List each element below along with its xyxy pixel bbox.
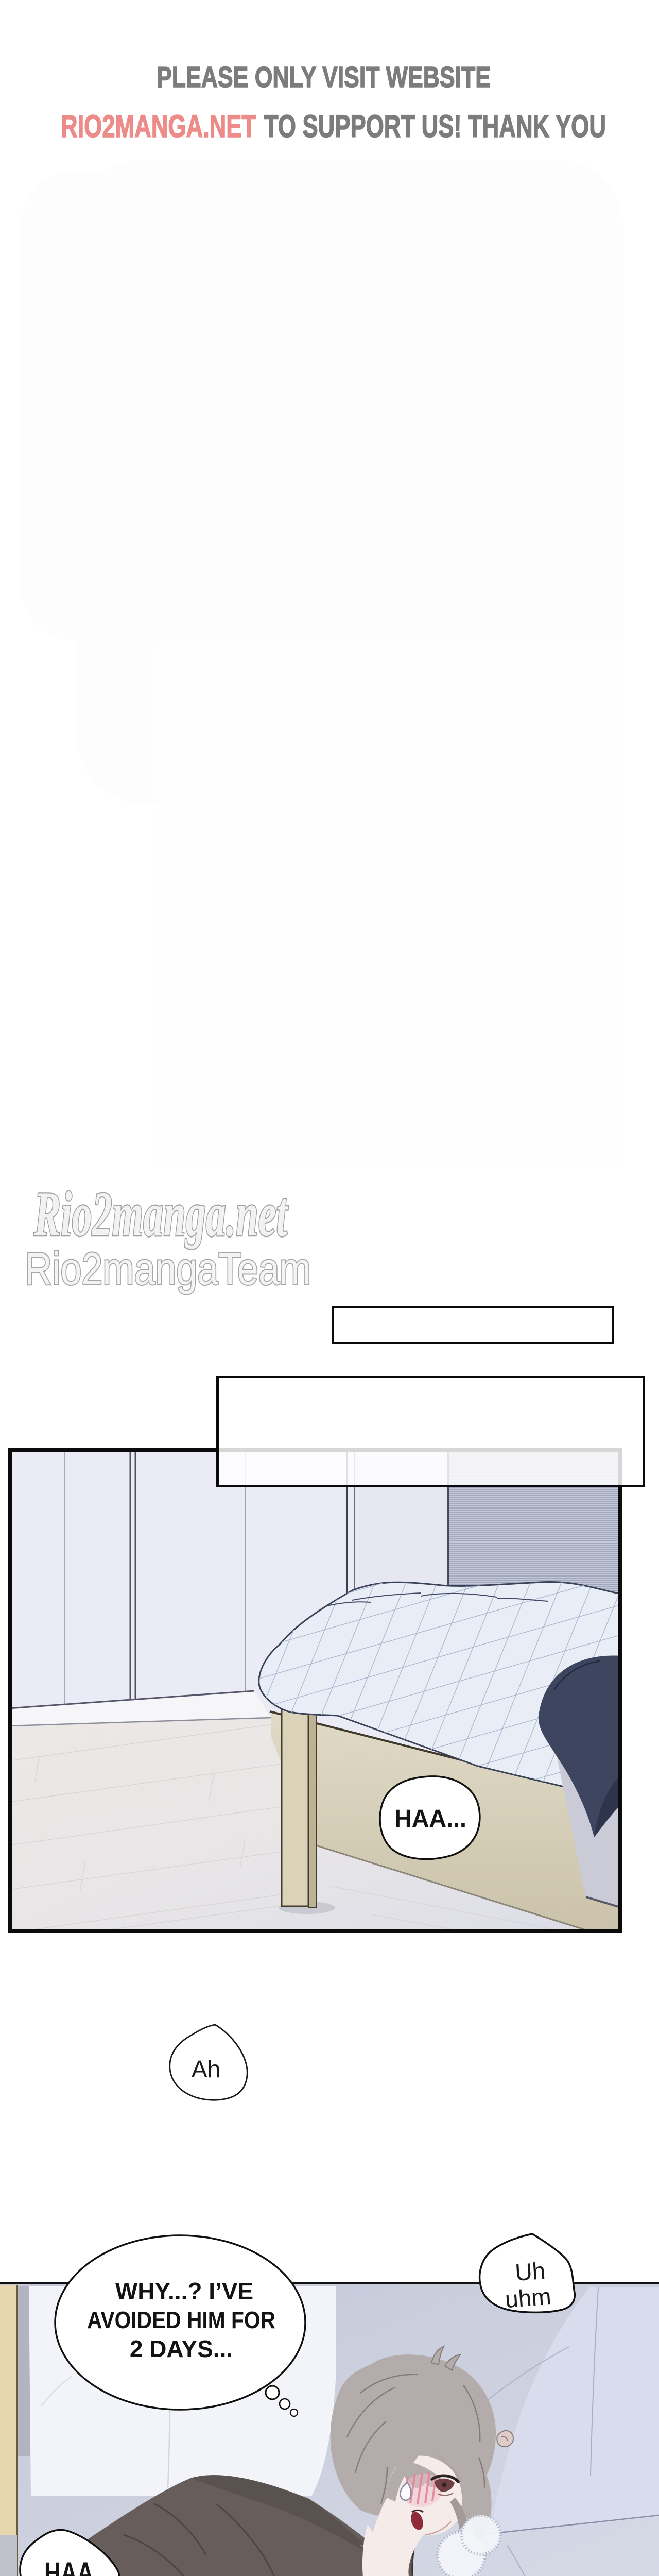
svg-text:PLEASE ONLY VISIT WEBSITE: PLEASE ONLY VISIT WEBSITE [157, 61, 491, 94]
svg-text:RIO2MANGA.NET: RIO2MANGA.NET [61, 109, 256, 144]
svg-text:2 DAYS...: 2 DAYS... [130, 2335, 233, 2362]
svg-text:uhm: uhm [504, 2283, 552, 2313]
svg-text:HAA...: HAA... [394, 1805, 466, 1833]
svg-text:AVOIDED HIM FOR: AVOIDED HIM FOR [87, 2307, 275, 2333]
svg-text:HAA,: HAA, [44, 2556, 100, 2576]
svg-text:Uh: Uh [514, 2257, 546, 2286]
svg-text:WHY...? I’VE: WHY...? I’VE [115, 2278, 253, 2304]
svg-text:Rio2mangaTeam: Rio2mangaTeam [25, 1243, 311, 1294]
svg-text:Rio2manga.net: Rio2manga.net [33, 1179, 288, 1249]
svg-text:TO SUPPORT US! THANK YOU: TO SUPPORT US! THANK YOU [264, 109, 606, 144]
svg-text:Ah: Ah [192, 2056, 220, 2082]
